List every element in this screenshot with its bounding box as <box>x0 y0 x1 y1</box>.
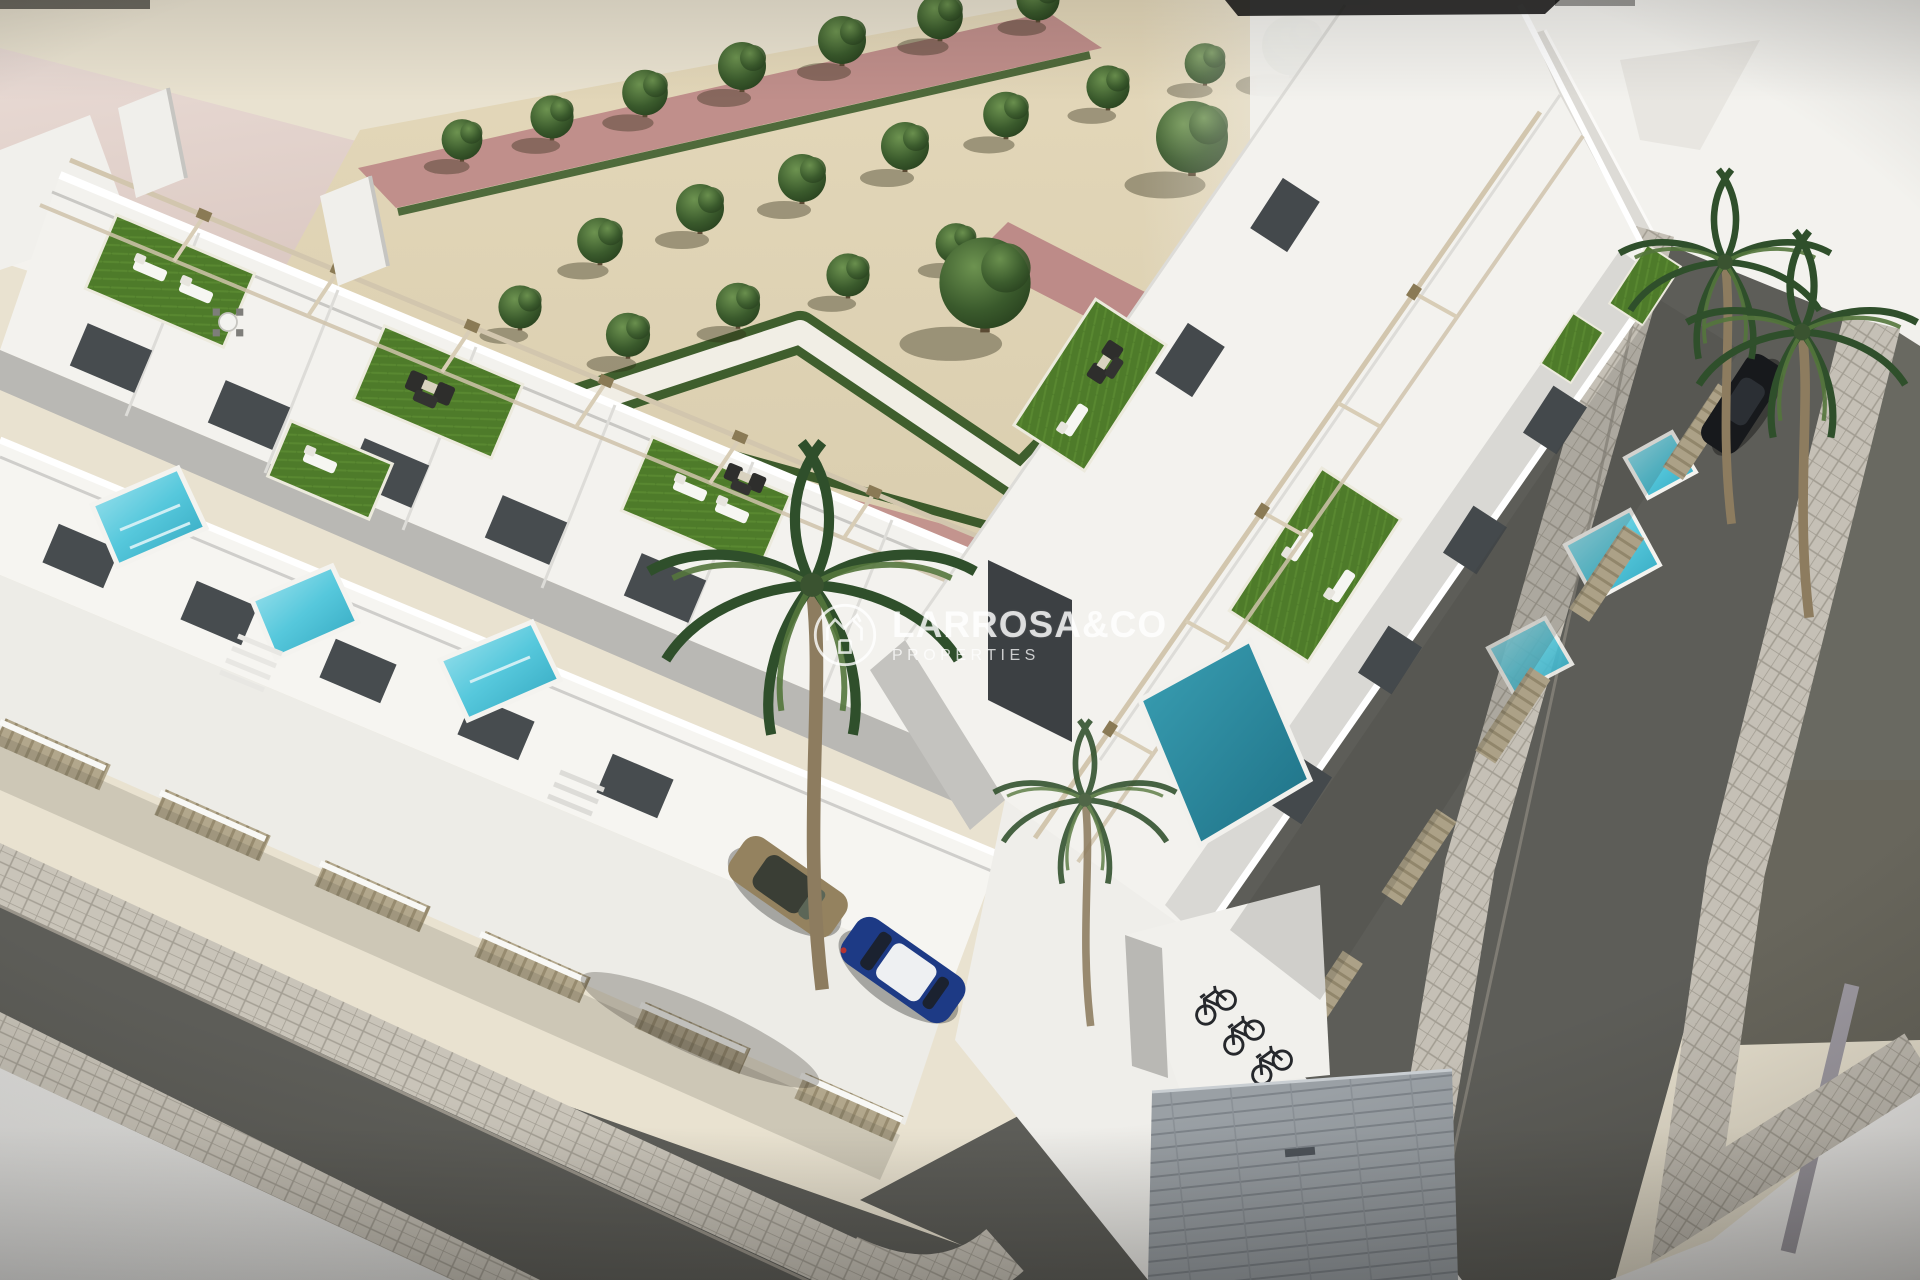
sidewalk-corner <box>845 1250 1005 1280</box>
larrosa-logo-icon <box>812 602 878 668</box>
render-image: LARROSA&CO PROPERTIES <box>0 0 1920 1280</box>
watermark-brand: LARROSA&CO <box>892 606 1167 644</box>
watermark-tagline: PROPERTIES <box>892 647 1167 665</box>
watermark: LARROSA&CO PROPERTIES <box>812 602 1167 668</box>
utility-garage-door <box>1148 1070 1458 1280</box>
